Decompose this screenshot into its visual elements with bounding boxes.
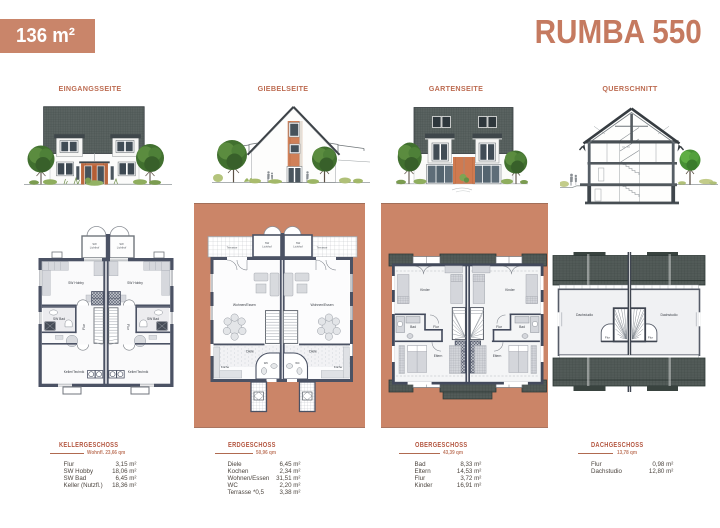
svg-text:Flur: Flur: [82, 323, 86, 330]
svg-text:Terrasse: Terrasse: [317, 246, 328, 250]
svg-text:Keller/Technik: Keller/Technik: [64, 370, 85, 374]
svg-text:Bad: Bad: [519, 325, 525, 329]
svg-text:SW: SW: [296, 241, 301, 245]
svg-text:Kinder: Kinder: [420, 288, 430, 292]
svg-text:SW: SW: [92, 242, 97, 246]
svg-text:Wohnen/Essen: Wohnen/Essen: [311, 303, 334, 307]
svg-text:SW Bad: SW Bad: [53, 317, 65, 321]
svg-text:Keller/Technik: Keller/Technik: [128, 370, 149, 374]
svg-text:Diele: Diele: [309, 350, 317, 354]
svg-text:Terrasse: Terrasse: [227, 246, 238, 250]
svg-text:Flur: Flur: [126, 324, 130, 331]
svg-text:Eltern: Eltern: [493, 354, 502, 358]
svg-text:SW Hobby: SW Hobby: [68, 281, 84, 285]
svg-text:Diele: Diele: [246, 350, 254, 354]
svg-text:Lichthof: Lichthof: [117, 246, 127, 250]
svg-text:WC: WC: [295, 361, 299, 365]
svg-text:Bad: Bad: [410, 325, 416, 329]
svg-text:Küche: Küche: [221, 365, 230, 369]
svg-text:Flur: Flur: [648, 336, 653, 340]
svg-text:Lichthof: Lichthof: [262, 245, 272, 249]
svg-text:Lichthof: Lichthof: [293, 245, 303, 249]
svg-text:Küche: Küche: [334, 365, 343, 369]
svg-text:Lichthof: Lichthof: [90, 246, 100, 250]
svg-text:Flur: Flur: [605, 336, 610, 340]
svg-text:Dachstudio: Dachstudio: [661, 313, 678, 317]
svg-text:SW Bad: SW Bad: [147, 317, 159, 321]
svg-text:Flur: Flur: [433, 325, 440, 329]
svg-text:Eltern: Eltern: [434, 354, 443, 358]
svg-text:Dachstudio: Dachstudio: [576, 313, 593, 317]
svg-text:Kinder: Kinder: [505, 288, 515, 292]
svg-text:Wohnen/Essen: Wohnen/Essen: [233, 303, 256, 307]
svg-text:WC: WC: [264, 361, 268, 365]
svg-text:SW Hobby: SW Hobby: [127, 281, 143, 285]
svg-text:SW: SW: [265, 241, 270, 245]
svg-text:Flur: Flur: [496, 325, 503, 329]
svg-text:SW: SW: [119, 242, 124, 246]
